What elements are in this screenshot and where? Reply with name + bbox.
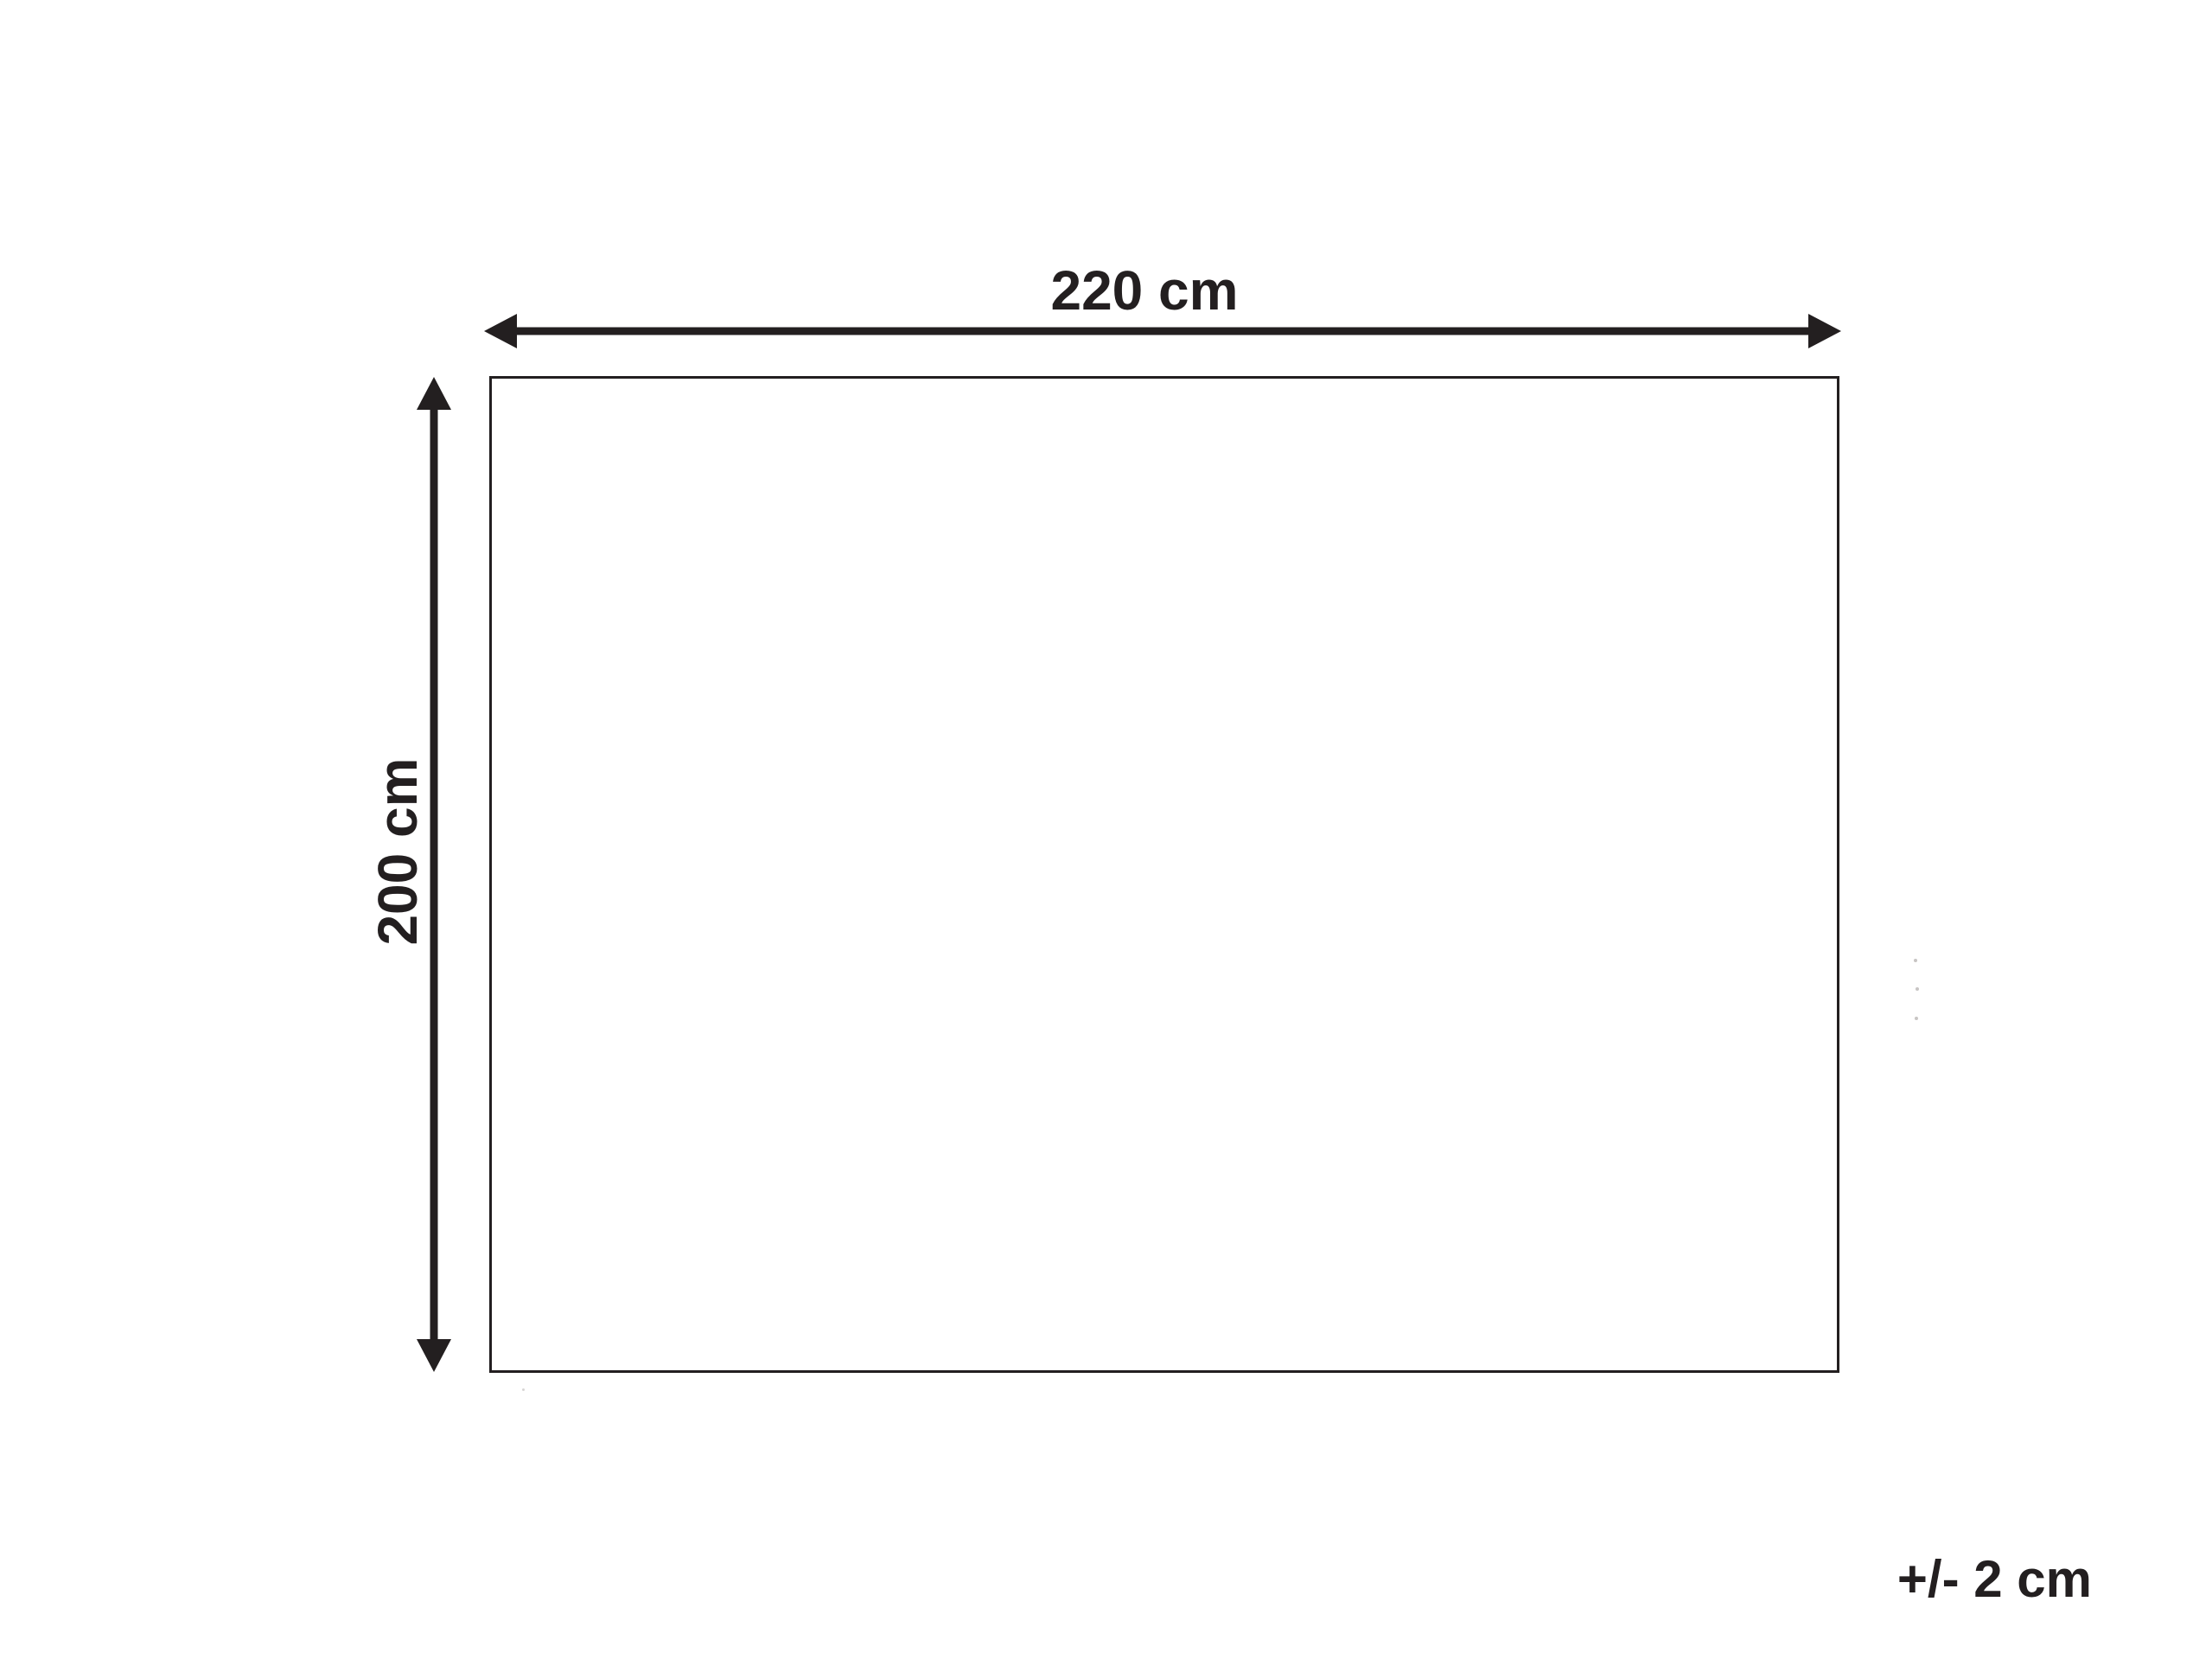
- height-dimension-label: 200 cm: [370, 757, 425, 945]
- tolerance-label: +/- 2 cm: [1897, 1554, 2092, 1605]
- width-arrowhead-left-icon: [484, 314, 517, 348]
- artifact-dot: [1914, 959, 1917, 962]
- width-dimension-label: 220 cm: [1050, 263, 1238, 318]
- height-arrowhead-bottom-icon: [417, 1339, 451, 1372]
- artifact-dot: [522, 1388, 525, 1391]
- product-outline-rectangle: [491, 378, 1839, 1372]
- artifact-dot: [1916, 987, 1919, 991]
- diagram-shapes: [0, 0, 2212, 1659]
- dimension-diagram: 220 cm 200 cm +/- 2 cm: [0, 0, 2212, 1659]
- artifact-dot: [1915, 1017, 1918, 1020]
- width-arrowhead-right-icon: [1808, 314, 1841, 348]
- height-arrowhead-top-icon: [417, 377, 451, 410]
